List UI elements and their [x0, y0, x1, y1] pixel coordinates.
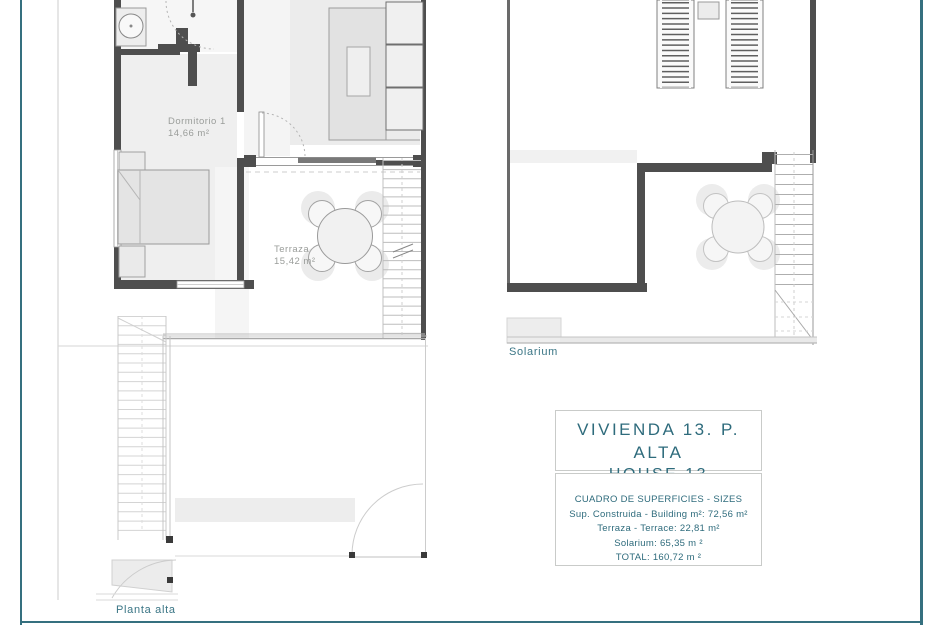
- surfaces-row-total: TOTAL: 160,72 m ²: [556, 551, 761, 566]
- surfaces-header: CUADRO DE SUPERFICIES - SIZES: [556, 493, 761, 508]
- room-name: Dormitorio 1: [168, 116, 226, 128]
- bathroom-sink: [116, 8, 146, 46]
- second-bedroom-furniture: [329, 2, 423, 140]
- sheet-border-right: [920, 0, 923, 625]
- surfaces-row-terrace: Terraza - Terrace: 22,81 m²: [556, 522, 761, 537]
- terrace-stairs: [383, 158, 413, 338]
- floor-plan-drawing: [0, 0, 945, 625]
- room-area: 15,42 m²: [274, 256, 316, 268]
- surfaces-row-solarium: Solarium: 65,35 m ²: [556, 537, 761, 552]
- surfaces-row-building: Sup. Construida - Building m²: 72,56 m²: [556, 508, 761, 523]
- room-area: 14,66 m²: [168, 128, 226, 140]
- sheet-border-bottom: [20, 621, 923, 623]
- surfaces-table: CUADRO DE SUPERFICIES - SIZES Sup. Const…: [555, 473, 762, 566]
- entry-porch: [96, 560, 178, 600]
- sheet-border-left: [20, 0, 22, 625]
- room-label-dormitorio1: Dormitorio 1 14,66 m²: [168, 116, 226, 140]
- solarium-stairs: [775, 150, 813, 345]
- room-label-terraza: Terraza 15,42 m²: [274, 244, 316, 268]
- room-name: Terraza: [274, 244, 316, 256]
- solarium-table-set: [696, 184, 780, 270]
- solarium-caption: Solarium: [509, 346, 558, 358]
- solarium-plan: [507, 0, 817, 345]
- planta-alta-caption: Planta alta: [116, 604, 176, 616]
- lower-room-outline: [163, 336, 427, 558]
- lower-stairs: [118, 316, 173, 543]
- title-box: VIVIENDA 13. P. ALTA HOUSE 13: [555, 410, 762, 471]
- bottom-window: [177, 281, 244, 288]
- planta-alta-plan: [58, 0, 428, 600]
- sun-loungers: [657, 0, 763, 88]
- house-title-line1: VIVIENDA 13. P. ALTA: [556, 418, 761, 464]
- drawing-sheet: Dormitorio 1 14,66 m² Terraza 15,42 m² S…: [0, 0, 945, 625]
